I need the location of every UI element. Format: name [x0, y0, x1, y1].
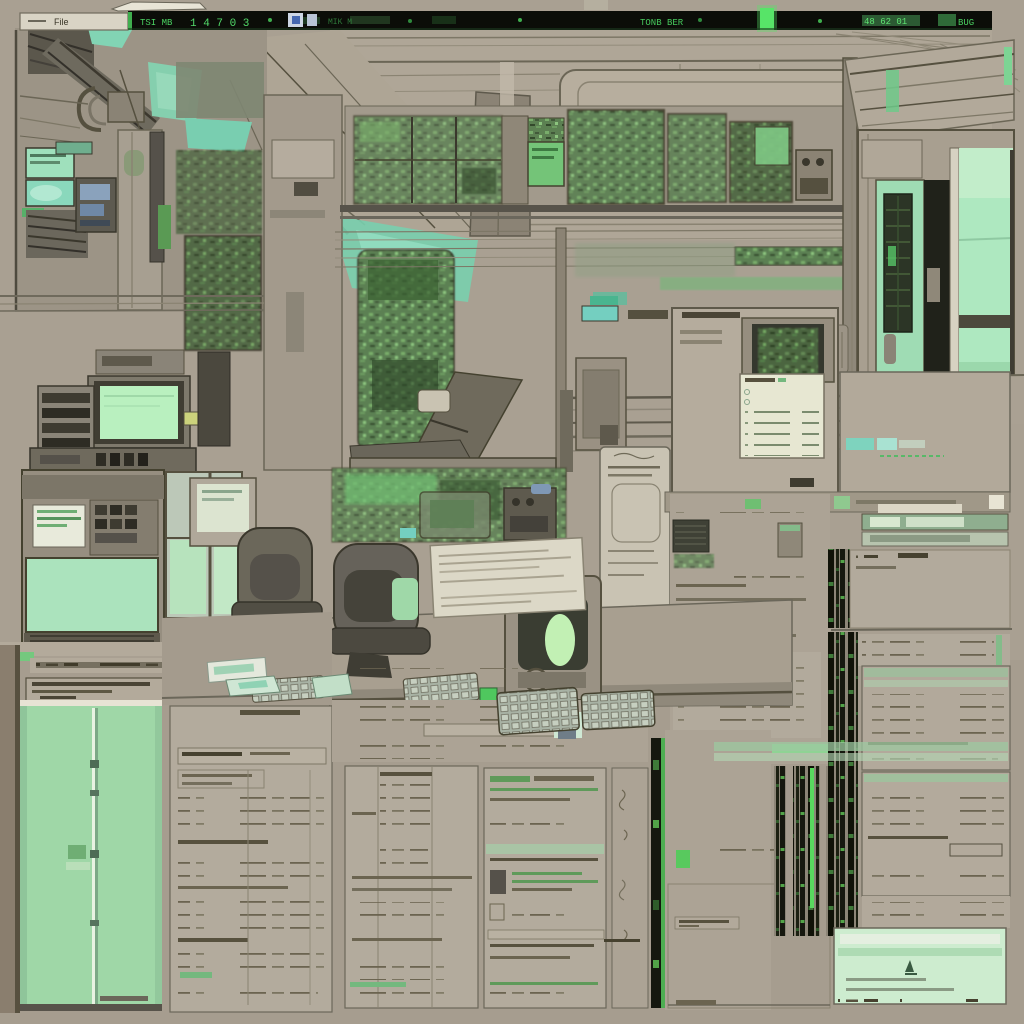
svg-text:MIK M: MIK M [328, 18, 352, 27]
svg-text:48 62 01: 48 62 01 [864, 17, 907, 27]
svg-text:File: File [54, 17, 69, 27]
svg-text:BUG: BUG [958, 18, 974, 28]
svg-text:TSI MB: TSI MB [140, 18, 173, 28]
svg-text:TONB BER: TONB BER [640, 18, 684, 28]
